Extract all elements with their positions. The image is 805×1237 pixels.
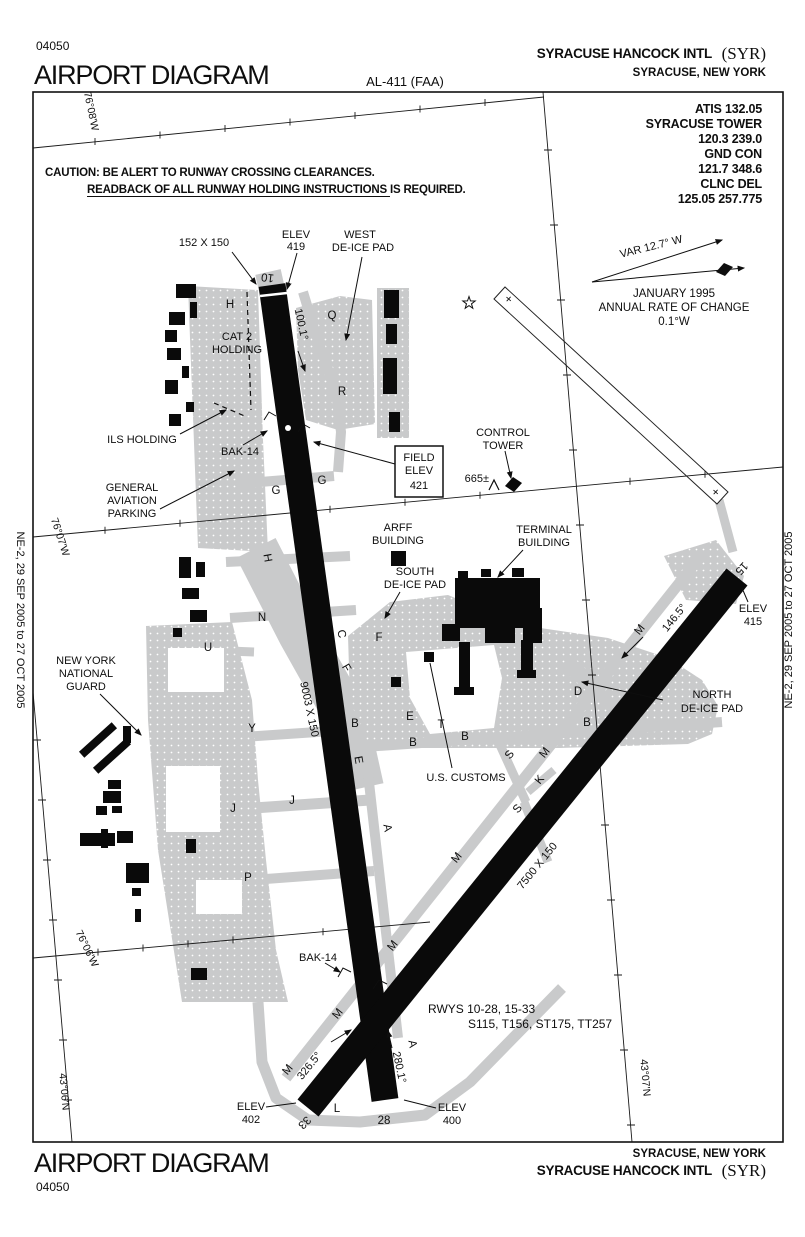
city-state-bottom: SYRACUSE, NEW YORK <box>633 1148 767 1160</box>
ga-parking-line1: GENERAL <box>106 482 159 494</box>
terminal-line1: TERMINAL <box>516 524 572 536</box>
page-title-top: AIRPORT DIAGRAM <box>34 60 269 90</box>
taxiway-label-g: G <box>318 475 327 487</box>
taxiway-label-e: E <box>406 711 414 723</box>
variation-date: JANUARY 1995 <box>633 288 715 300</box>
cat2-holding-line2: HOLDING <box>212 344 262 356</box>
national-guard-line2: NATIONAL <box>59 668 113 680</box>
taxiway-label-y: Y <box>248 723 256 735</box>
latitude-label-06: 43°06'N <box>56 1073 71 1111</box>
taxiway-label-p: P <box>244 872 252 884</box>
taxiway-label-j: J <box>230 803 236 815</box>
south-deice-line2: DE-ICE PAD <box>384 579 446 591</box>
taxiway-label-g: G <box>272 485 281 497</box>
freq-line: ATIS 132.05 <box>695 102 762 116</box>
taxiway-label-b: B <box>461 731 469 743</box>
taxiway-label-a: A <box>405 1039 418 1049</box>
field-elev-line2: ELEV <box>405 465 434 477</box>
taxiway-label-r: R <box>338 386 346 398</box>
edition-left: NE-2, 29 SEP 2005 to 27 OCT 2005 <box>14 532 26 709</box>
arff-line2: BUILDING <box>372 535 424 547</box>
runway-number-10: 10 <box>261 270 275 283</box>
elev-400-label: ELEV <box>438 1102 467 1114</box>
variation-rate2: 0.1°W <box>658 316 690 328</box>
frequency-block: ATIS 132.05 SYRACUSE TOWER 120.3 239.0 G… <box>646 102 763 206</box>
taxiway-label-b: B <box>351 718 359 730</box>
taxiway-label-t: T <box>437 719 444 731</box>
longitude-label-06: 76°06'W <box>73 928 101 969</box>
taxiway-label-d: D <box>574 686 582 698</box>
taxiway-label-b: B <box>583 717 591 729</box>
control-tower-line1: CONTROL <box>476 427 530 439</box>
north-deice-line2: DE-ICE PAD <box>681 703 743 715</box>
north-deice-line1: NORTH <box>693 689 732 701</box>
star-icon <box>463 297 475 309</box>
longitude-label-07: 76°07'W <box>48 516 72 557</box>
caution-line1: CAUTION: BE ALERT TO RUNWAY CROSSING CLE… <box>45 167 375 179</box>
airport-code-top: (SYR) <box>722 44 766 63</box>
displaced-threshold-dimensions: 152 X 150 <box>179 237 229 249</box>
freq-line: CLNC DEL <box>700 177 762 191</box>
taxiway-label-f: F <box>375 632 382 644</box>
ga-parking-line3: PARKING <box>108 508 157 520</box>
variation-diamond <box>716 263 733 276</box>
airport-name-top: SYRACUSE HANCOCK INTL <box>537 46 712 61</box>
national-guard-line1: NEW YORK <box>56 655 116 667</box>
variation-rate1: ANNUAL RATE OF CHANGE <box>599 302 750 314</box>
bak14-north-label: BAK-14 <box>221 446 259 458</box>
elev-415-value: 415 <box>744 616 762 628</box>
freq-line: GND CON <box>704 147 762 161</box>
taxiway-label-b: B <box>409 737 417 749</box>
runway-strength-note-1: RWYS 10-28, 15-33 <box>428 1002 535 1016</box>
obstacle-icon <box>489 480 499 490</box>
taxiway-label-l: L <box>334 1103 341 1115</box>
longitude-label-08: 76°08'W <box>81 91 101 132</box>
freq-line: 121.7 348.6 <box>698 162 762 176</box>
procedure-id: AL-411 (FAA) <box>366 74 444 89</box>
cat2-holding-line1: CAT 2 <box>222 331 252 343</box>
chart-number-bottom: 04050 <box>36 1180 70 1194</box>
control-tower-line2: TOWER <box>483 440 524 452</box>
taxiway-label-h: H <box>226 299 234 311</box>
variation-value: VAR 12.7° W <box>619 233 685 260</box>
taxiway-label-q: Q <box>328 310 337 322</box>
taxiway-label-a: A <box>380 823 393 833</box>
chart-number-top: 04050 <box>36 39 70 53</box>
city-state-top: SYRACUSE, NEW YORK <box>633 67 767 79</box>
ils-holding-label: ILS HOLDING <box>107 434 177 446</box>
latitude-label-07: 43°07'N <box>637 1059 652 1097</box>
elev-415-label: ELEV <box>739 603 768 615</box>
terminal-line2: BUILDING <box>518 537 570 549</box>
airport-diagram-page: 04050 AIRPORT DIAGRAM AL-411 (FAA) SYRAC… <box>0 0 805 1237</box>
freq-line: 125.05 257.775 <box>678 192 762 206</box>
diagram-canvas: 04050 AIRPORT DIAGRAM AL-411 (FAA) SYRAC… <box>0 0 805 1237</box>
elev-419-label: ELEV <box>282 229 311 241</box>
national-guard-line3: GUARD <box>66 681 106 693</box>
airport-code-bottom: (SYR) <box>722 1161 766 1180</box>
field-elev-line3: 421 <box>410 480 428 492</box>
taxiway-label-c: C <box>334 629 347 639</box>
elev-402-label: ELEV <box>237 1101 266 1113</box>
runway-strength-note-2: S115, T156, ST175, TT257 <box>468 1017 612 1031</box>
west-deice-line2: DE-ICE PAD <box>332 242 394 254</box>
edition-right: NE-2, 29 SEP 2005 to 27 OCT 2005 <box>783 532 795 709</box>
approach-corridor <box>494 287 728 504</box>
taxiway-label-n: N <box>258 612 266 624</box>
control-tower-symbol <box>505 477 522 492</box>
elev-402-value: 402 <box>242 1114 260 1126</box>
page-title-bottom: AIRPORT DIAGRAM <box>34 1148 269 1178</box>
arff-line1: ARFF <box>384 522 413 534</box>
runway-number-28: 28 <box>378 1115 391 1127</box>
taxiway-label-j: J <box>289 795 295 807</box>
elev-400-value: 400 <box>443 1115 461 1127</box>
tower-elevation: 665± <box>465 473 489 485</box>
runway-reference-dot <box>285 425 291 431</box>
caution-line2: READBACK OF ALL RUNWAY HOLDING INSTRUCTI… <box>87 184 466 196</box>
ga-parking-line2: AVIATION <box>107 495 157 507</box>
taxiway-label-u: U <box>204 642 212 654</box>
airport-name-bottom: SYRACUSE HANCOCK INTL <box>537 1163 712 1178</box>
us-customs-label: U.S. CUSTOMS <box>426 772 505 784</box>
field-elev-line1: FIELD <box>403 452 434 464</box>
bak14-south-label: BAK-14 <box>299 952 337 964</box>
freq-line: SYRACUSE TOWER <box>646 117 763 131</box>
west-deice-line1: WEST <box>344 229 376 241</box>
elev-419-value: 419 <box>287 241 305 253</box>
south-deice-line1: SOUTH <box>396 566 435 578</box>
freq-line: 120.3 239.0 <box>698 132 762 146</box>
